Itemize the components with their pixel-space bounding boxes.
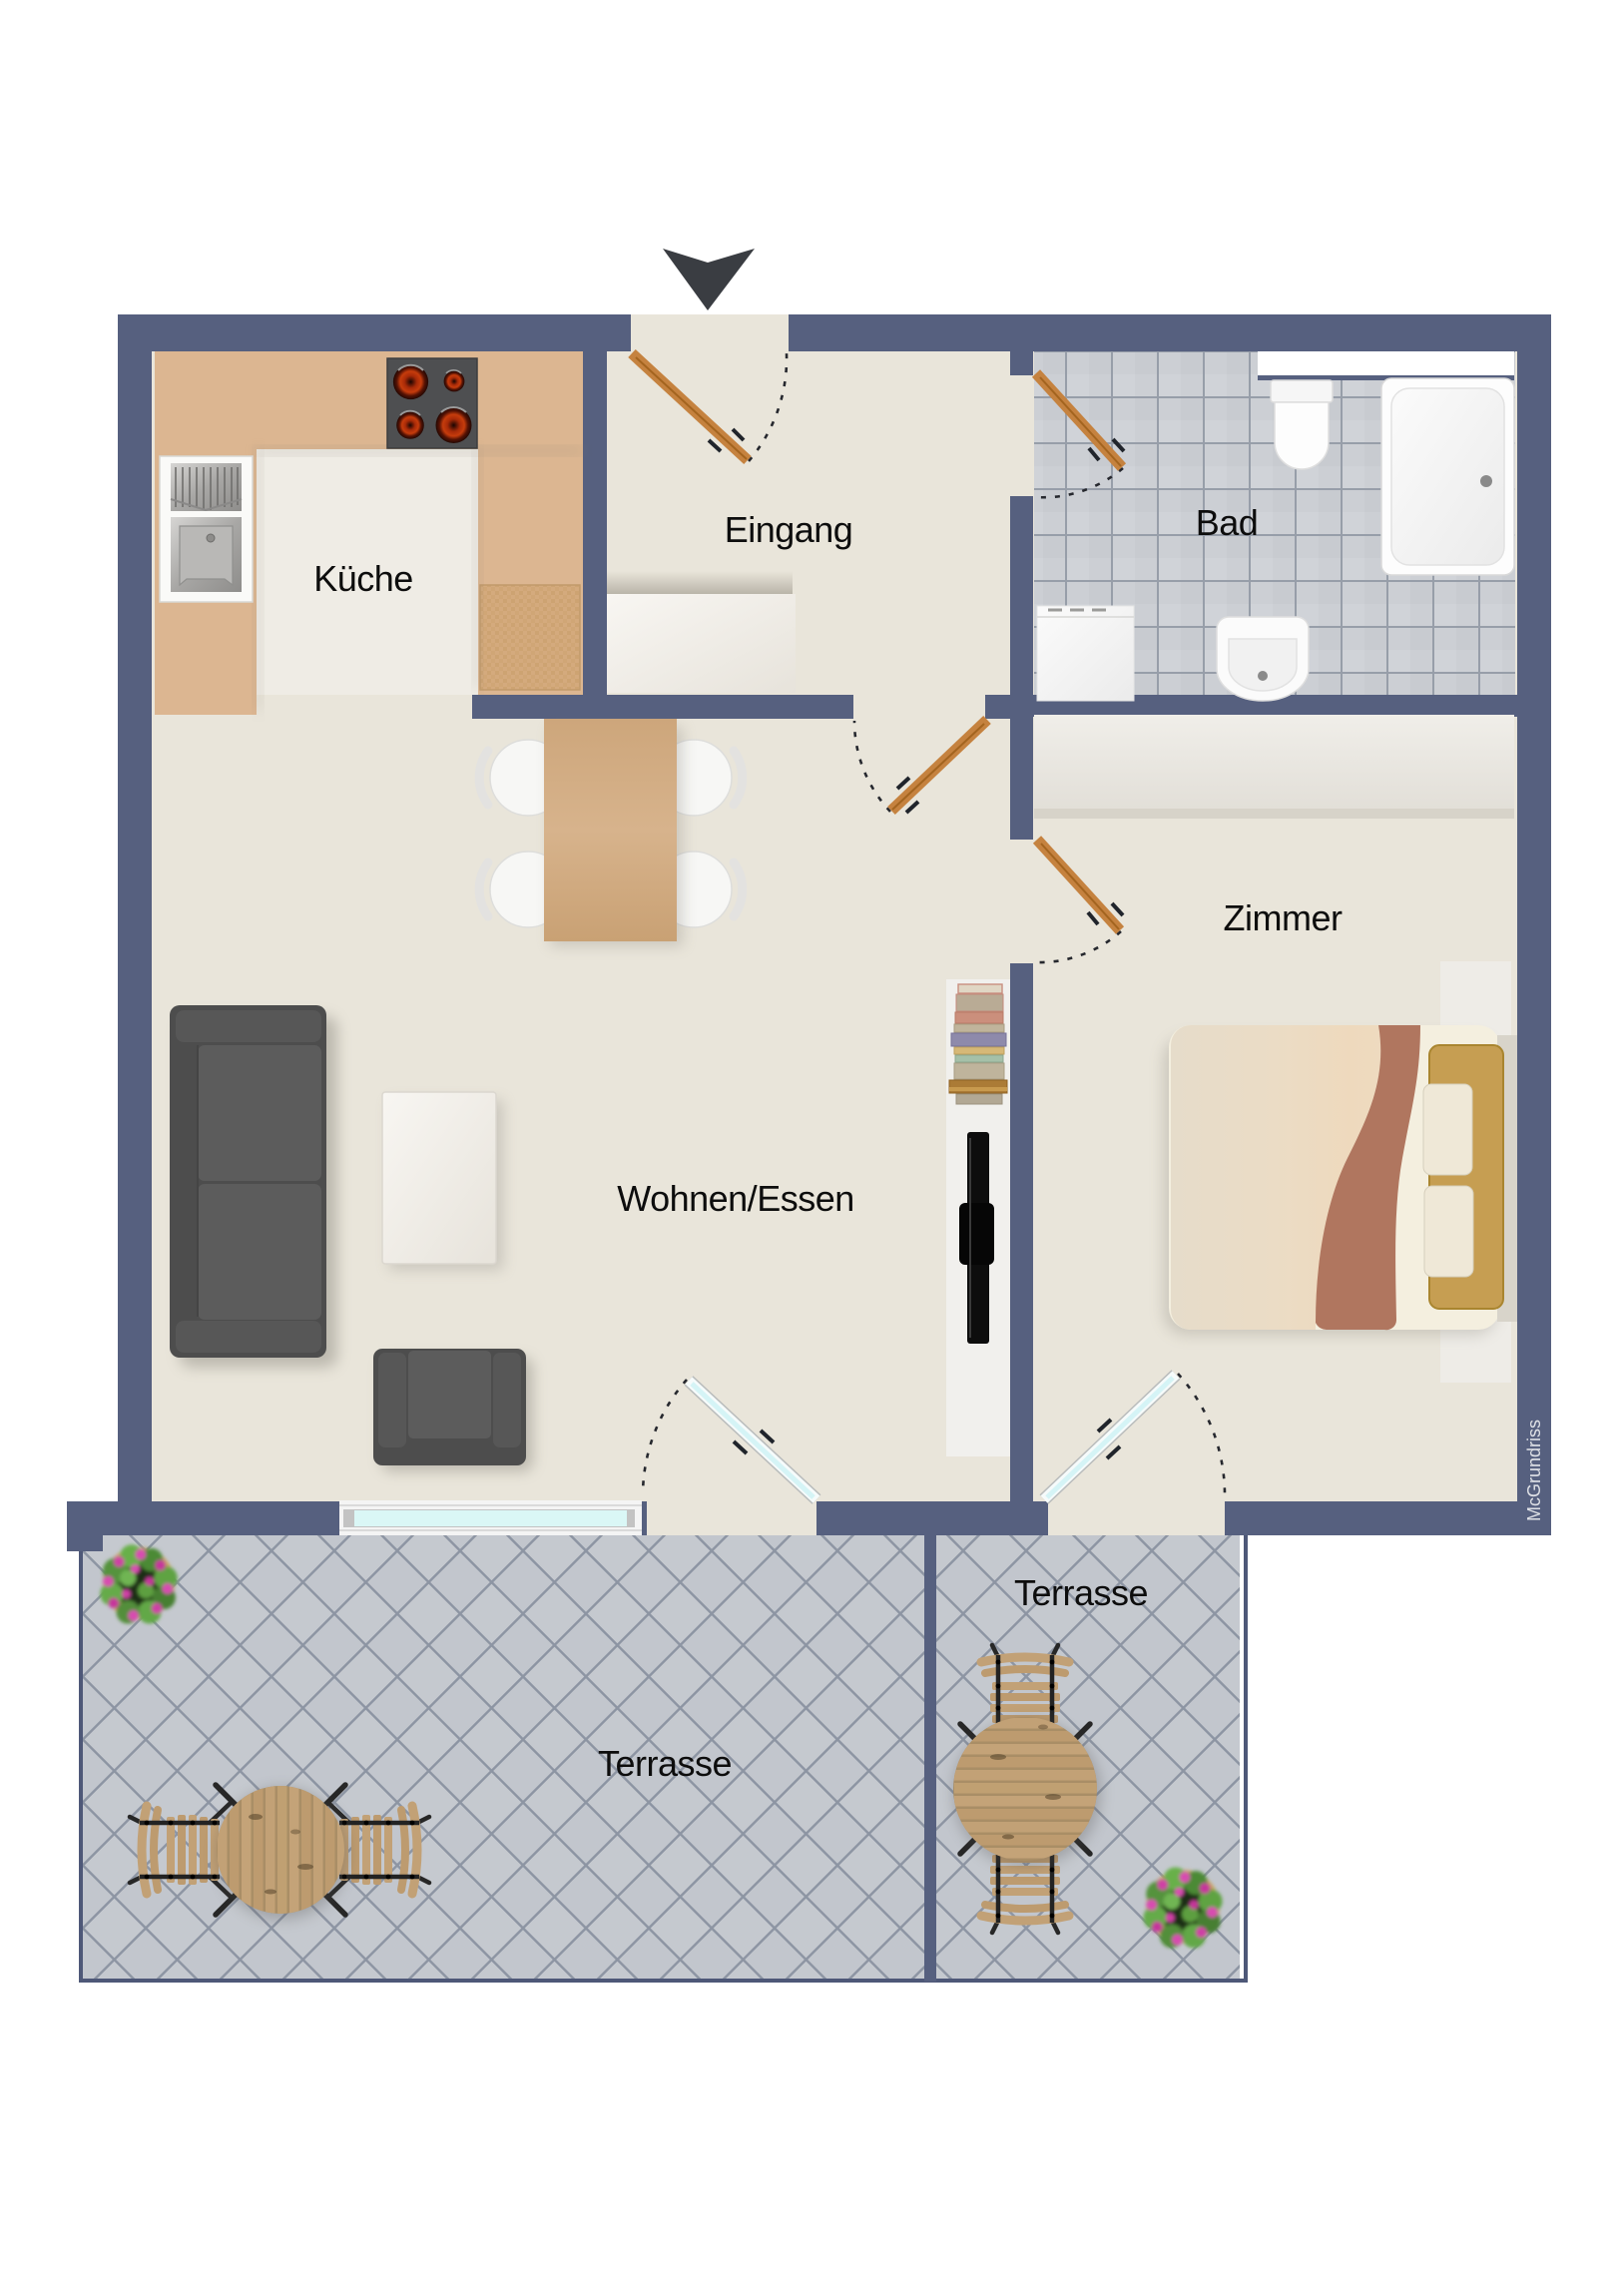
svg-text:Küche: Küche xyxy=(313,558,413,599)
svg-text:Bad: Bad xyxy=(1196,502,1259,543)
svg-text:Terrasse: Terrasse xyxy=(1014,1572,1148,1613)
svg-text:Terrasse: Terrasse xyxy=(598,1743,732,1784)
svg-text:McGrundriss: McGrundriss xyxy=(1524,1420,1544,1521)
svg-text:Zimmer: Zimmer xyxy=(1224,897,1343,938)
svg-text:Eingang: Eingang xyxy=(725,509,853,550)
svg-text:Wohnen/Essen: Wohnen/Essen xyxy=(617,1178,854,1219)
